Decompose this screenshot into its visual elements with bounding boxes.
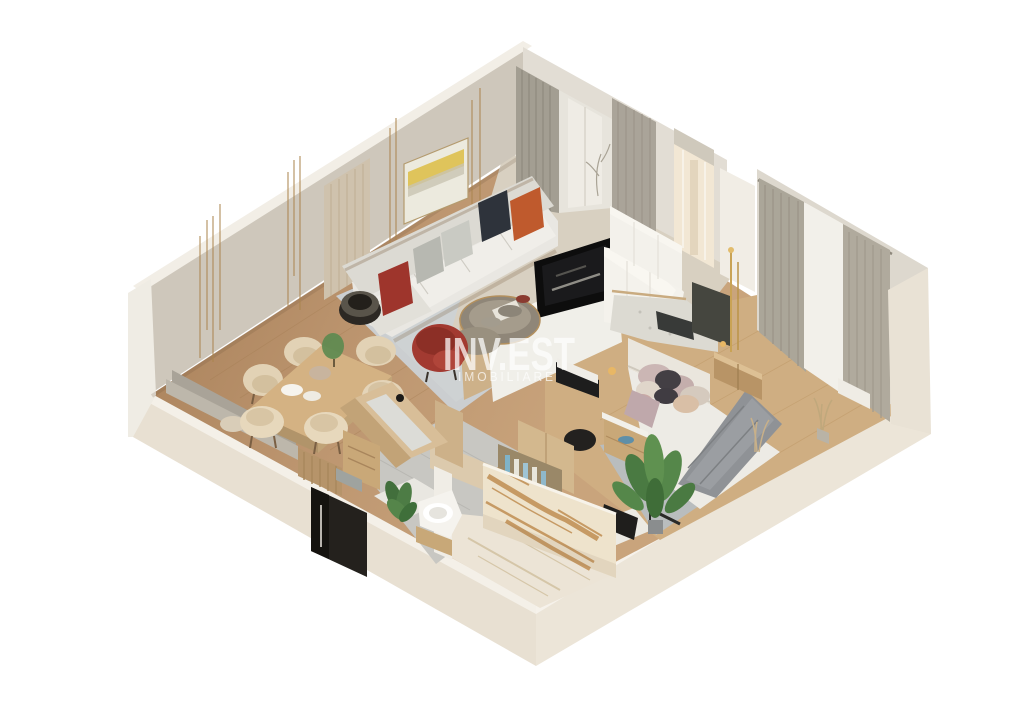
svg-text:IMOBILIARE: IMOBILIARE xyxy=(458,370,556,384)
